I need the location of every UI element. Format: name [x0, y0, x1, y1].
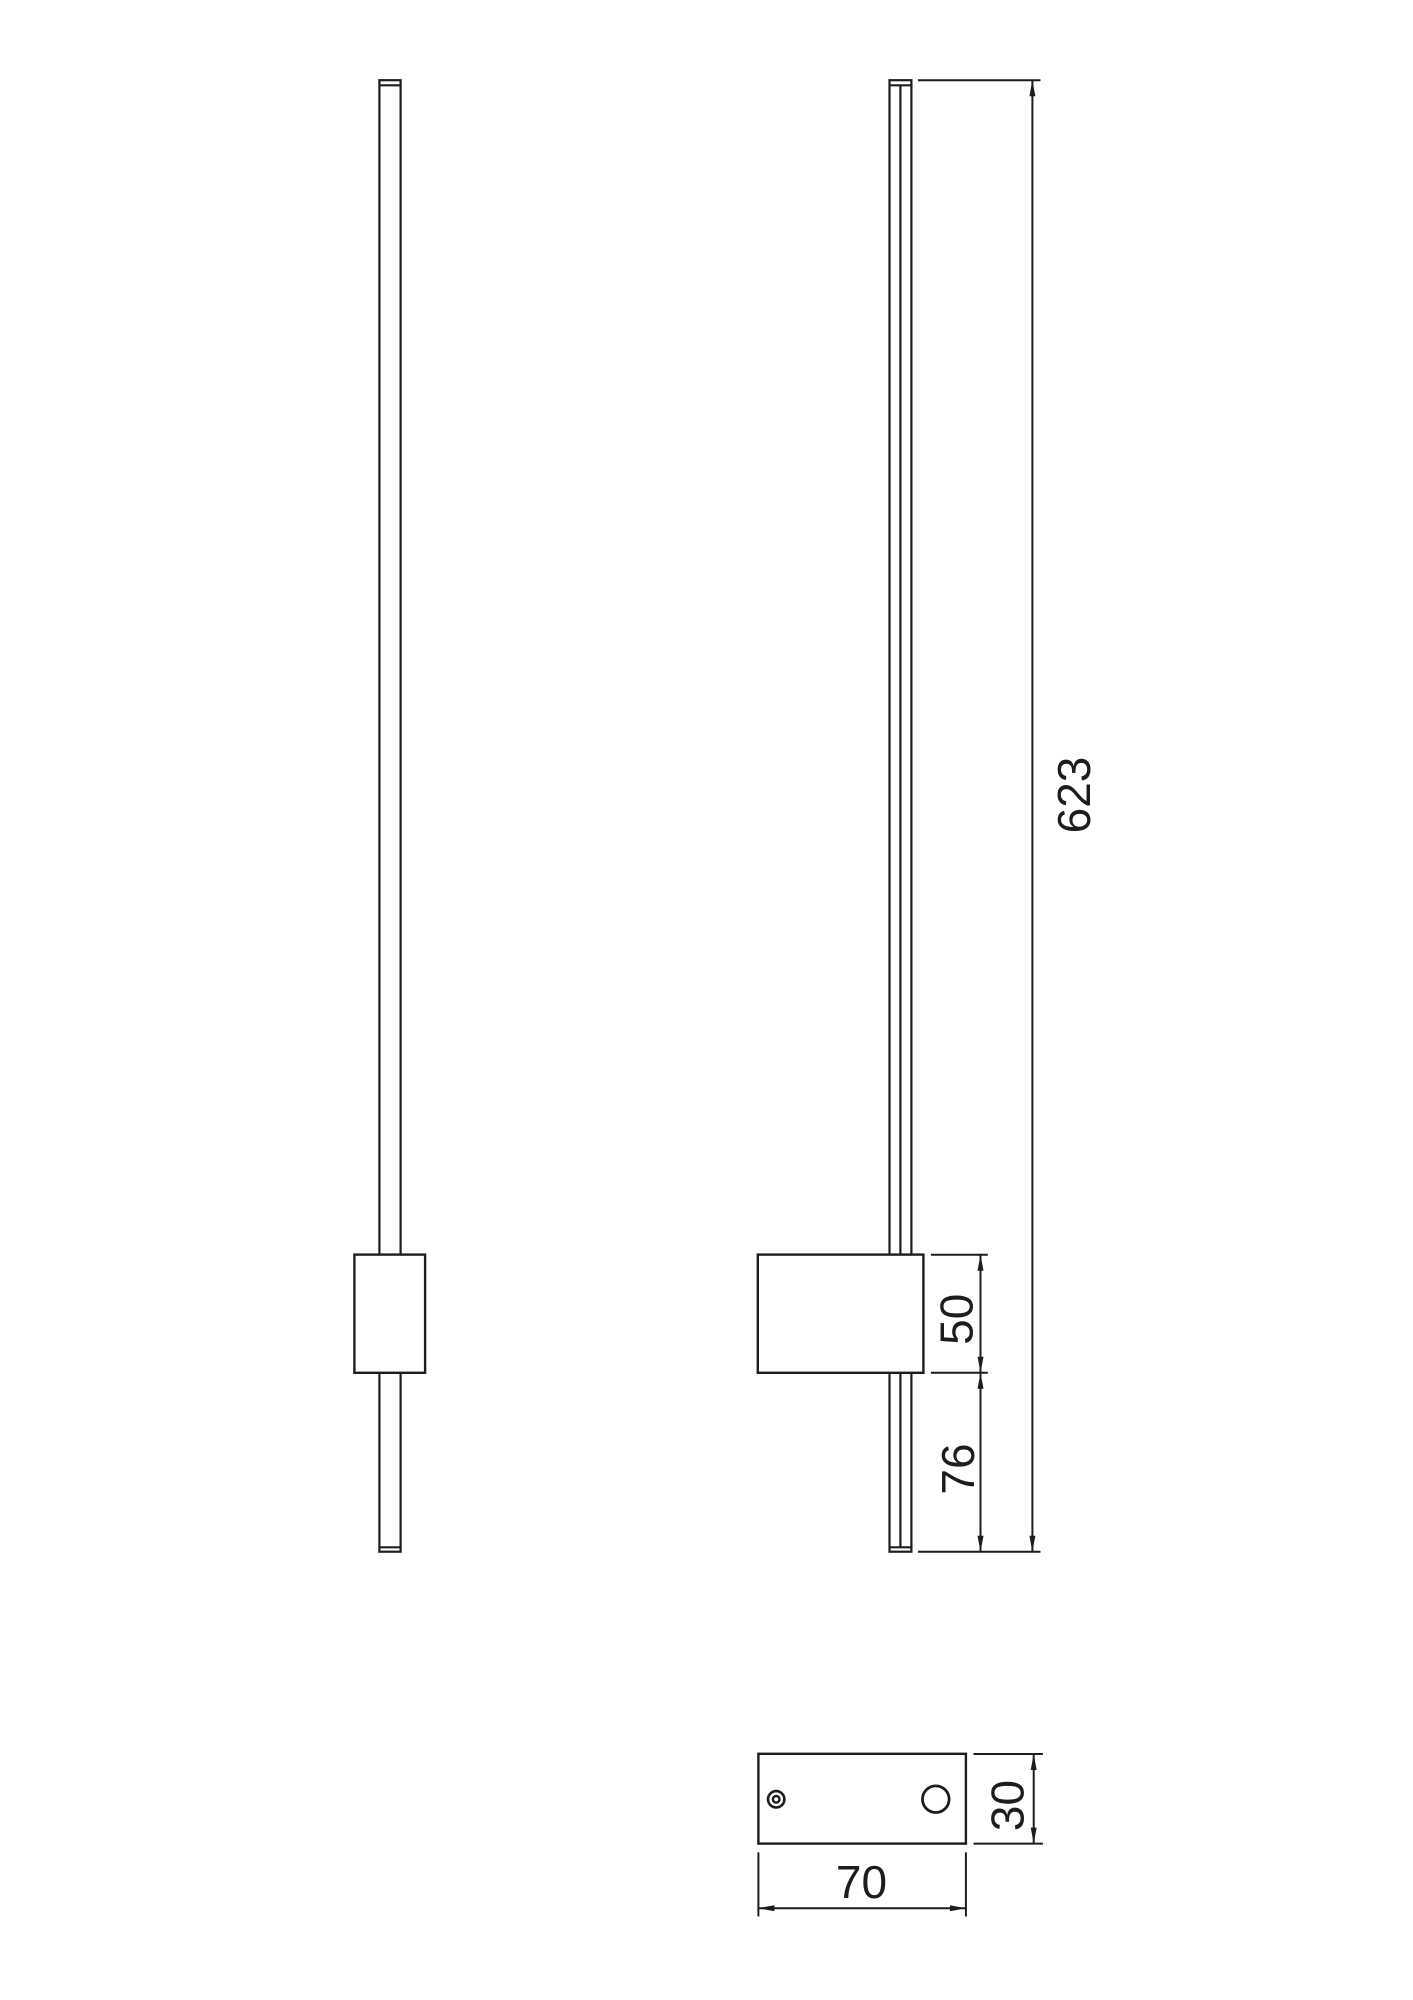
svg-text:76: 76: [932, 1443, 984, 1494]
svg-text:30: 30: [982, 1780, 1034, 1831]
svg-text:70: 70: [836, 1856, 887, 1908]
svg-text:50: 50: [931, 1294, 983, 1345]
svg-text:623: 623: [1048, 757, 1100, 834]
